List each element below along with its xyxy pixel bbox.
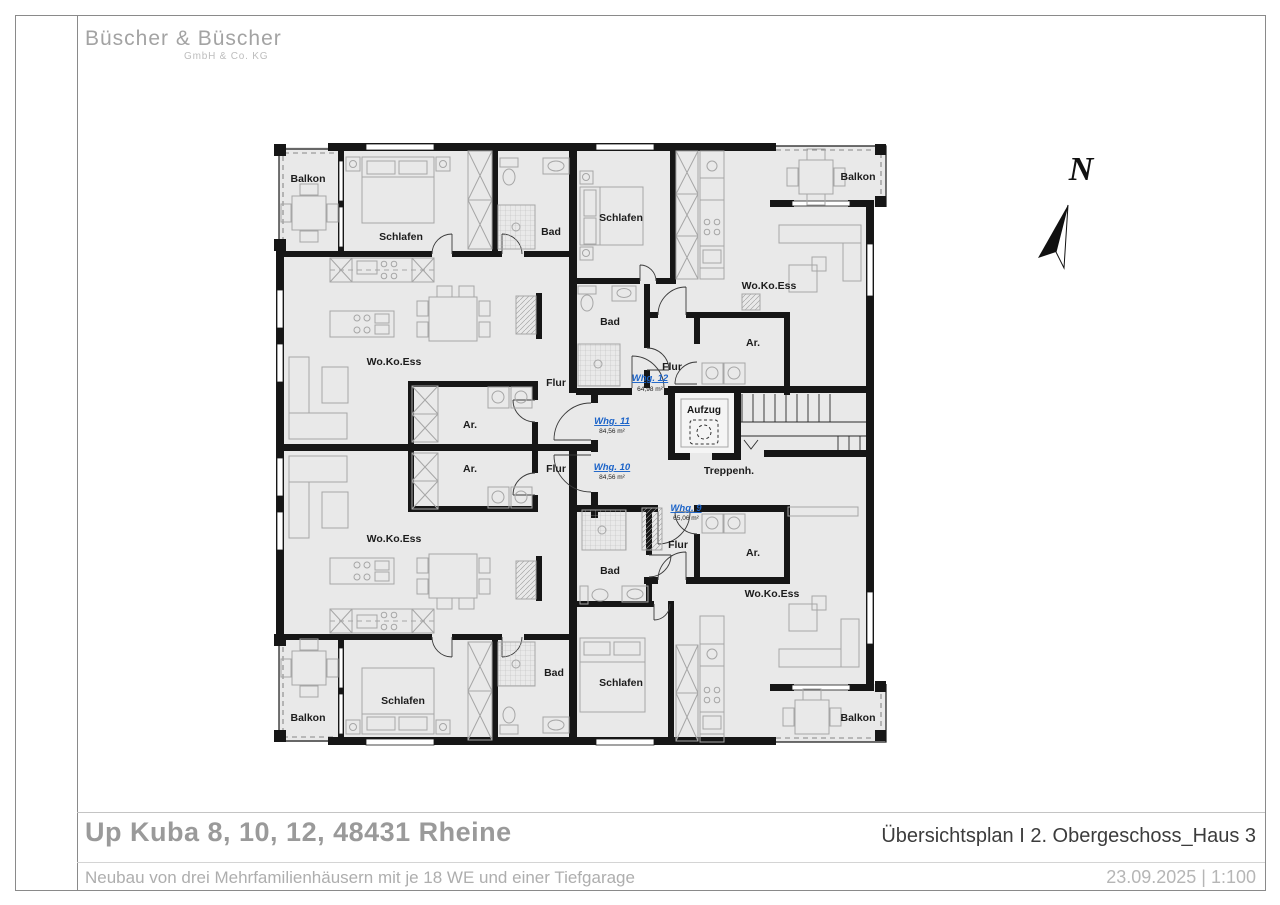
shelf-symbol: [642, 508, 662, 550]
room-label-schlafen: Schlafen: [381, 695, 425, 707]
compass: N: [1038, 151, 1095, 268]
unit-area-whg9: 65,06 m²: [673, 515, 699, 522]
room-label-bad: Bad: [544, 667, 564, 679]
elevator: Aufzug: [675, 393, 734, 453]
unit-link-whg12[interactable]: Whg. 12: [632, 373, 669, 384]
unit-link-whg10[interactable]: Whg. 10: [594, 462, 631, 473]
shelf-symbol: [516, 561, 536, 599]
shelf-symbol: [742, 294, 760, 310]
room-label-schlafen: Schlafen: [599, 212, 643, 224]
room-label-flur: Flur: [662, 361, 682, 373]
room-label-wohnen: Wo.Ko.Ess: [742, 280, 797, 292]
unit-area-whg12: 64,98 m²: [637, 386, 663, 393]
room-label-abstellraum: Ar.: [746, 547, 760, 559]
north-label: N: [1068, 151, 1095, 188]
room-label-flur: Flur: [668, 539, 688, 551]
room-label-bad: Bad: [600, 565, 620, 577]
room-label-flur: Flur: [546, 463, 566, 475]
room-label-schlafen: Schlafen: [599, 677, 643, 689]
unit-area-whg10: 84,56 m²: [599, 474, 625, 481]
drawing-sheet-page: Büscher & Büscher GmbH & Co. KG Up Kuba …: [0, 0, 1280, 905]
unit-link-whg9[interactable]: Whg. 9: [670, 503, 702, 514]
room-label-wohnen: Wo.Ko.Ess: [367, 356, 422, 368]
room-label-bad: Bad: [600, 316, 620, 328]
room-label-wohnen: Wo.Ko.Ess: [367, 533, 422, 545]
floor-plan-drawing: Aufzug: [0, 0, 1280, 905]
room-label-balkon: Balkon: [290, 173, 325, 185]
room-label-abstellraum: Ar.: [746, 337, 760, 349]
room-label-abstellraum: Ar.: [463, 463, 477, 475]
elevator-label: Aufzug: [687, 405, 721, 416]
room-label-wohnen: Wo.Ko.Ess: [745, 588, 800, 600]
shelf-symbol: [516, 296, 536, 334]
unit-link-whg11[interactable]: Whg. 11: [594, 416, 630, 427]
room-label-schlafen: Schlafen: [379, 231, 423, 243]
room-label-bad: Bad: [541, 226, 561, 238]
room-label-flur: Flur: [546, 377, 566, 389]
room-label-balkon: Balkon: [290, 712, 325, 724]
room-label-balkon: Balkon: [840, 712, 875, 724]
room-label-abstellraum: Ar.: [463, 419, 477, 431]
room-label-balkon: Balkon: [840, 171, 875, 183]
room-label-treppenhaus: Treppenh.: [704, 465, 754, 477]
unit-area-whg11: 84,56 m²: [599, 428, 625, 435]
